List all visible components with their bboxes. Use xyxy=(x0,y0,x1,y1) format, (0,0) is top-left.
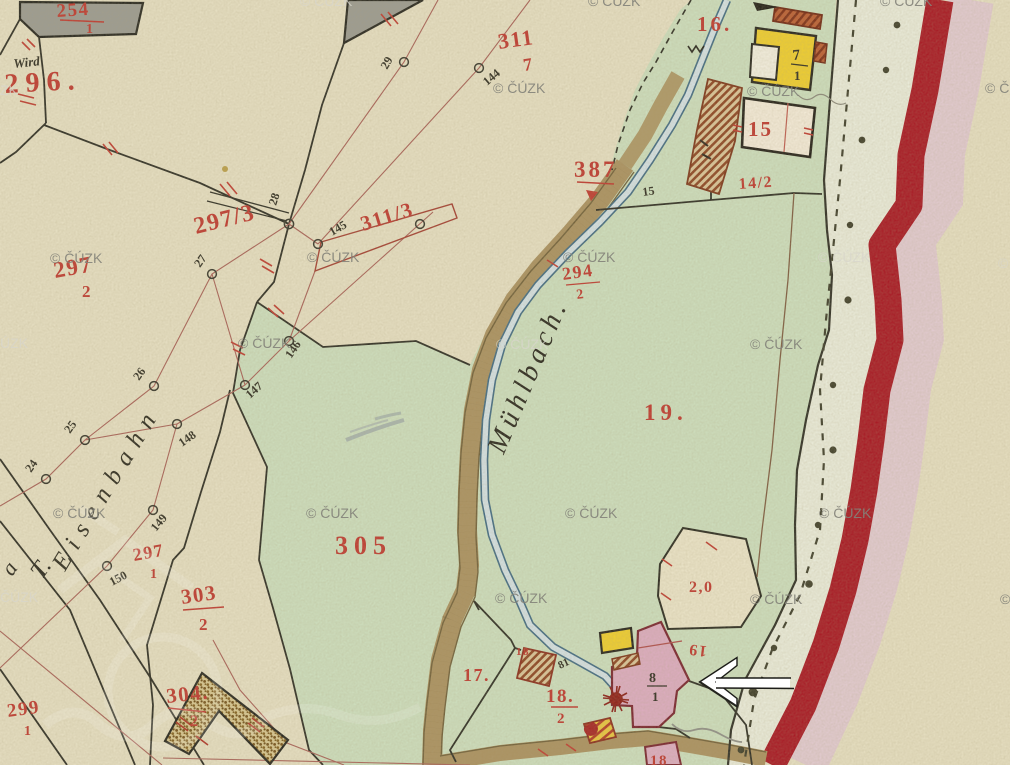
svg-text:© ČÚZK: © ČÚZK xyxy=(818,249,871,265)
svg-text:© ČÚZK: © ČÚZK xyxy=(300,0,353,9)
svg-text:© ČÚZK: © ČÚZK xyxy=(496,336,549,352)
svg-text:© ČÚZK: © ČÚZK xyxy=(306,505,359,521)
svg-text:© ČÚZK: © ČÚZK xyxy=(565,505,618,521)
svg-text:ÚZK: ÚZK xyxy=(0,335,29,351)
svg-text:© ČÚZK: © ČÚZK xyxy=(588,0,641,9)
svg-text:© ČÚZK: © ČÚZK xyxy=(819,505,872,521)
svg-text:© ČÚZK: © ČÚZK xyxy=(750,591,803,607)
svg-text:© Č: © Č xyxy=(985,80,1009,96)
svg-text:© ČÚZK: © ČÚZK xyxy=(53,505,106,521)
svg-text:© ČÚZK: © ČÚZK xyxy=(747,83,800,99)
svg-text:© ČÚZK: © ČÚZK xyxy=(880,0,933,9)
svg-text:© ČÚZK: © ČÚZK xyxy=(495,590,548,606)
svg-text:©: © xyxy=(998,255,1009,271)
svg-text:©: © xyxy=(1000,591,1010,607)
svg-text:© ČÚZK: © ČÚZK xyxy=(50,250,103,266)
svg-text:ZK: ZK xyxy=(0,82,19,98)
svg-text:© ČÚZK: © ČÚZK xyxy=(563,249,616,265)
svg-text:© ČÚZK: © ČÚZK xyxy=(307,249,360,265)
svg-text:© ČÚZK: © ČÚZK xyxy=(238,335,291,351)
svg-text:ČÚZK: ČÚZK xyxy=(0,589,39,605)
svg-text:© ČÚZK: © ČÚZK xyxy=(493,80,546,96)
svg-text:© ČÚZK: © ČÚZK xyxy=(750,336,803,352)
